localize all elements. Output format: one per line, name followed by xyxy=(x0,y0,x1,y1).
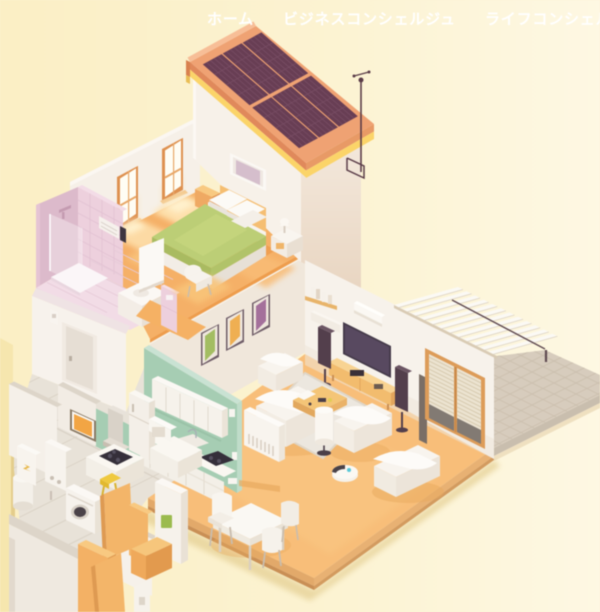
svg-text:ライフコンシェルジュ: ライフコンシェルジュ xyxy=(485,11,600,28)
svg-text:ホーム: ホーム xyxy=(207,11,254,28)
svg-text:ビジネスコンシェルジュ: ビジネスコンシェルジュ xyxy=(283,11,456,28)
